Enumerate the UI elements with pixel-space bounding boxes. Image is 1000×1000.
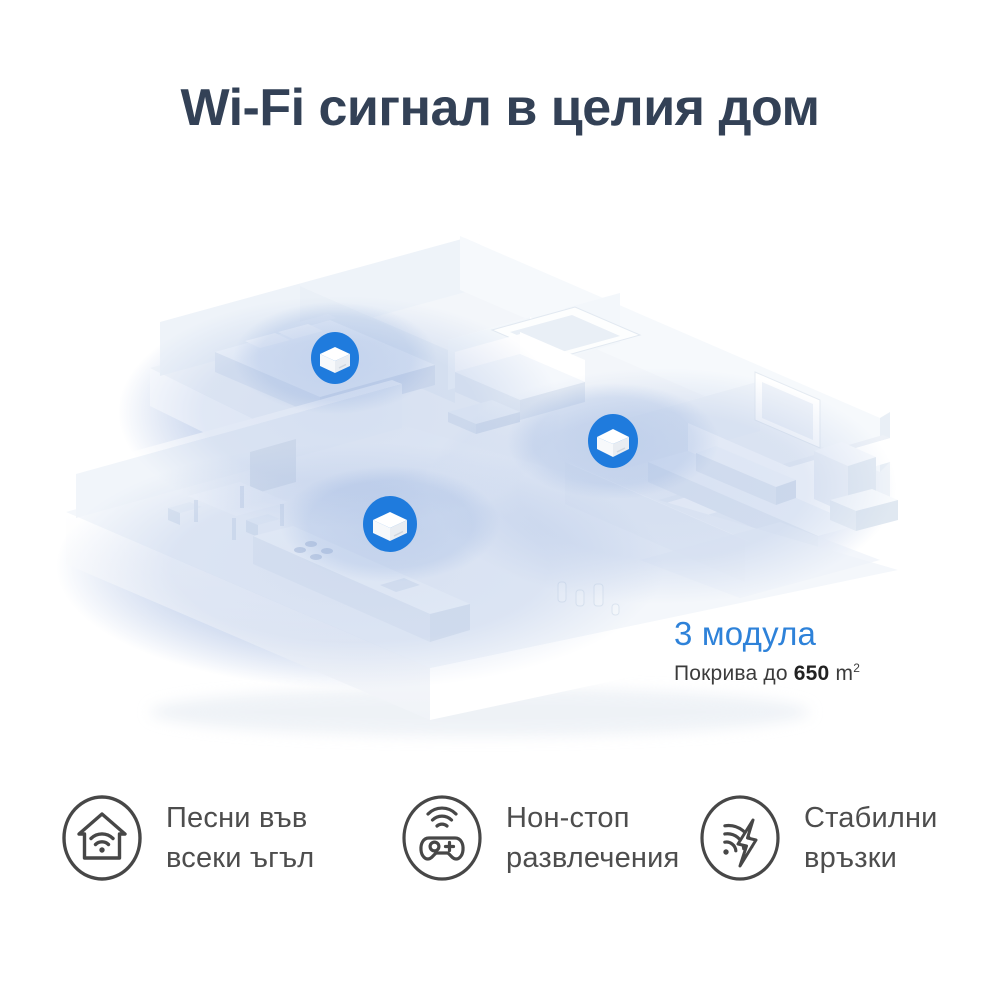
feature-row: Песни във всеки ъгъл Нон-стоп развлечени… <box>0 794 1000 894</box>
gamepad-wifi-icon <box>400 794 484 882</box>
coverage-info: 3 модула Покрива до 650 m2 <box>674 615 860 686</box>
feature-label: Песни във всеки ъгъл <box>166 794 314 878</box>
coverage-area-label: Покрива до 650 m2 <box>674 661 860 686</box>
page: Wi-Fi сигнал в целия дом <box>0 0 1000 1000</box>
coverage-area-unit: m <box>835 662 853 685</box>
mesh-device-badge-1 <box>311 332 359 384</box>
feature-label: Стабилни връзки <box>804 794 938 878</box>
feature-label-line1: Нон-стоп <box>506 798 679 838</box>
feature-label-line2: всеки ъгъл <box>166 838 314 878</box>
mesh-device-badge-2 <box>588 414 638 468</box>
coverage-area-value: 650 <box>794 662 830 685</box>
home-wifi-icon <box>60 794 144 882</box>
modules-count-label: 3 модула <box>674 615 860 653</box>
feature-label-line1: Стабилни <box>804 798 938 838</box>
feature-stable-connections: Стабилни връзки <box>698 794 938 882</box>
feature-label-line1: Песни във <box>166 798 314 838</box>
mesh-device-badge-3 <box>363 496 417 552</box>
wifi-lightning-icon <box>698 794 782 882</box>
feature-label: Нон-стоп развлечения <box>506 794 679 878</box>
feature-label-line2: връзки <box>804 838 938 878</box>
feature-home-coverage: Песни във всеки ъгъл <box>60 794 314 882</box>
coverage-area-superscript: 2 <box>853 661 860 675</box>
coverage-area-prefix: Покрива до <box>674 662 788 685</box>
feature-label-line2: развлечения <box>506 838 679 878</box>
feature-nonstop-entertainment: Нон-стоп развлечения <box>400 794 679 882</box>
